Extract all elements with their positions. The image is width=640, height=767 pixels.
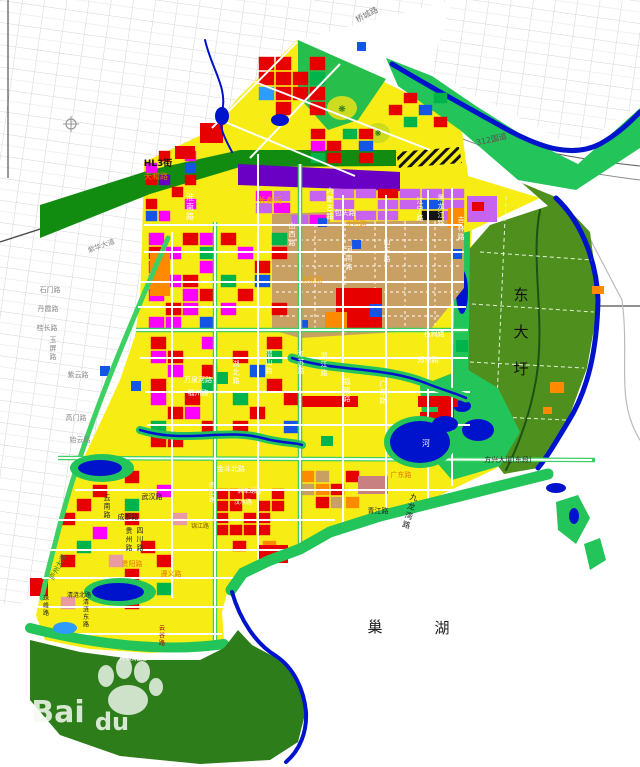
block-cluster [166, 317, 181, 329]
block-cluster [183, 233, 198, 245]
block-cluster [404, 93, 417, 103]
block-cluster [77, 541, 91, 553]
block-cluster [276, 57, 291, 70]
block-cluster [327, 141, 341, 151]
map-label: 桂长路 [37, 323, 58, 332]
block-cluster [149, 317, 164, 329]
block-cluster [258, 501, 270, 511]
map-label: 玉屏路 [50, 336, 57, 361]
block-cluster [146, 211, 157, 221]
block-cluster [183, 289, 198, 301]
baidu-paw-icon [149, 678, 163, 696]
block-cluster [316, 497, 329, 508]
green-block [456, 340, 468, 352]
map-label: 山东路 [384, 237, 391, 263]
map-label: 河 [422, 438, 430, 448]
map-label: 珠峰路 [43, 594, 49, 617]
block-cluster [276, 72, 291, 85]
shore-water [546, 483, 566, 493]
map-label: 贵阳路 [122, 559, 143, 568]
block-cluster [284, 393, 299, 405]
map-label: 四川路 [137, 527, 144, 552]
map-label: 方兴大道(东段) [484, 455, 532, 464]
map-label: 山西路 [289, 221, 296, 247]
stream-pond [215, 107, 229, 125]
dongdawei-orange [543, 407, 552, 414]
block-cluster [419, 105, 432, 115]
block-cluster [276, 102, 291, 115]
block-cluster [327, 153, 341, 163]
block-cluster [444, 200, 464, 209]
block-cluster [221, 233, 236, 245]
map-label: 武汉路 [142, 492, 163, 501]
block-cluster [272, 303, 287, 315]
map-label: 潜山路 [266, 349, 273, 375]
block-cluster [244, 513, 256, 523]
block-cluster [434, 117, 447, 127]
map-label: 贵州路 [126, 526, 133, 552]
block-cluster [378, 189, 398, 198]
block-cluster [216, 513, 228, 523]
shore-water [569, 508, 579, 524]
map-label: 紫云路 [68, 370, 89, 379]
map-label: 丹霞路 [38, 304, 59, 313]
red-block [472, 202, 484, 211]
block-cluster [146, 199, 157, 209]
block-cluster [151, 379, 166, 391]
blue-block [352, 240, 361, 249]
block-cluster [258, 513, 270, 523]
sw-pond [78, 460, 122, 476]
blue-block [452, 249, 462, 259]
baidu-watermark-text: du [95, 708, 129, 736]
map-label: 湖 [434, 619, 449, 637]
forest-pond [53, 622, 77, 634]
block-cluster [272, 501, 284, 511]
block-cluster [267, 337, 282, 349]
map-label: 福建路 [344, 377, 351, 403]
block-cluster [434, 93, 447, 103]
ne-road-b [622, 300, 640, 440]
map-label: 石涧路 [424, 329, 445, 338]
block-cluster [238, 289, 253, 301]
map-label: 云谷路 [159, 625, 165, 647]
map-label: 福州路 [188, 388, 209, 397]
block-cluster [185, 163, 196, 173]
map-label: 天和路 [144, 171, 168, 181]
map-label: 江宁路 [417, 197, 424, 222]
red-block [200, 123, 223, 143]
block-cluster [93, 527, 107, 539]
block-cluster [404, 117, 417, 127]
map-label: 潜江路 [321, 351, 328, 377]
dongdawei-orange [592, 286, 604, 294]
city-pond-b [432, 416, 458, 432]
map-label: 广东路 [391, 470, 412, 479]
block-cluster [359, 129, 373, 139]
block-cluster [346, 471, 359, 482]
block-cluster [258, 525, 270, 535]
block-cluster [166, 303, 181, 315]
block-cluster [125, 499, 139, 511]
block-cluster [233, 393, 248, 405]
block-cluster [343, 129, 357, 139]
block-cluster [216, 525, 228, 535]
block-cluster [151, 337, 166, 349]
map-canvas: 桥城路312国道HL3街天和路淮南路长春街内蒙古路包头路沈阳路江宁路黑龙江路吉林… [0, 0, 640, 767]
map-label: 黑龙江路 [438, 194, 445, 228]
blue-block [370, 304, 382, 317]
block-cluster [311, 141, 325, 151]
urban-planning-map: 桥城路312国道HL3街天和路淮南路长春街内蒙古路包头路沈阳路江宁路黑龙江路吉林… [0, 0, 640, 767]
pond-small [271, 114, 289, 126]
block-cluster [356, 211, 376, 220]
map-label: 汉水路 [234, 498, 252, 506]
baidu-paw-icon [98, 665, 114, 687]
block-cluster [378, 200, 398, 209]
block-cluster [284, 421, 299, 433]
map-label: 始云路 [70, 435, 91, 444]
blue-block [131, 381, 141, 391]
map-label: 金斗北路 [217, 464, 245, 473]
map-label: 清涟北路 [67, 591, 91, 599]
sw-pond2 [92, 583, 144, 601]
zoning-shapes-layer [0, 0, 640, 767]
map-label: 南山路 [209, 481, 215, 504]
map-label: 环湖北路 [119, 653, 147, 662]
block-cluster [157, 583, 171, 595]
block-cluster [151, 393, 166, 405]
map-label: 沈阳路 [346, 219, 367, 228]
map-label: 高门路 [66, 413, 87, 422]
map-label: 锦江路 [191, 522, 209, 530]
block-cluster [444, 189, 464, 198]
block-cluster [159, 211, 170, 221]
map-label: 内蒙古路 [327, 186, 334, 221]
map-label: 包头路 [335, 208, 356, 217]
map-label: 长春街 [258, 195, 282, 205]
block-cluster [77, 499, 91, 511]
block-cluster [359, 141, 373, 151]
block-cluster [389, 105, 402, 115]
block-cluster [185, 175, 196, 185]
map-label: 河南路 [346, 246, 353, 271]
block-cluster [168, 407, 183, 419]
map-label: 遵义路 [161, 569, 182, 578]
map-label: 洪泽湖路 [237, 487, 261, 495]
baidu-paw-icon [134, 661, 150, 683]
map-label: HL3街 [144, 157, 173, 169]
map-label: 成都路 [118, 512, 139, 521]
map-label: 石门路 [40, 285, 61, 294]
map-label: 广东路 [380, 379, 387, 405]
park-tree-icon: ❋ [338, 105, 346, 115]
block-cluster [316, 471, 329, 482]
block-cluster [310, 191, 326, 201]
map-label: 湖北路 [233, 359, 240, 385]
block-cluster [310, 57, 325, 70]
block-cluster [172, 187, 183, 197]
block-cluster [168, 365, 183, 377]
block-cluster [293, 72, 308, 85]
block-cluster [244, 525, 256, 535]
block-cluster [149, 233, 164, 245]
map-label: 万泉河路 [184, 375, 212, 384]
wetland-pond-a [462, 419, 494, 441]
blue-block [357, 42, 366, 51]
map-label: 吉林路 [458, 216, 465, 241]
pink-block [358, 476, 388, 494]
green-block [321, 436, 333, 446]
block-cluster [185, 407, 200, 419]
block-cluster [359, 153, 373, 163]
dongdawei-orange [550, 382, 564, 393]
map-label: 郑州路 [418, 355, 439, 364]
block-cluster [221, 303, 236, 315]
block-cluster [378, 211, 398, 220]
block-cluster [311, 129, 325, 139]
baidu-watermark-text: Bai [31, 695, 84, 730]
map-label: 青江路 [368, 506, 389, 515]
map-label: 巢 [367, 618, 382, 636]
map-label: 太原路 [302, 275, 323, 284]
block-cluster [230, 525, 242, 535]
red-block [175, 146, 195, 159]
block-cluster [157, 555, 171, 567]
park-tree-icon: ❋ [375, 129, 382, 138]
block-cluster [346, 497, 359, 508]
map-label: 淮南路 [186, 192, 194, 221]
block-cluster [183, 303, 198, 315]
block-cluster [356, 189, 376, 198]
block-cluster [272, 233, 287, 245]
block-cluster [216, 501, 228, 511]
map-label: 江苏路 [298, 350, 305, 375]
map-label: 云南路 [104, 494, 111, 519]
block-cluster [301, 471, 314, 482]
block-cluster [267, 379, 282, 391]
map-label: 清涟东路 [83, 598, 89, 629]
map-label: 东大圩 [513, 286, 528, 378]
